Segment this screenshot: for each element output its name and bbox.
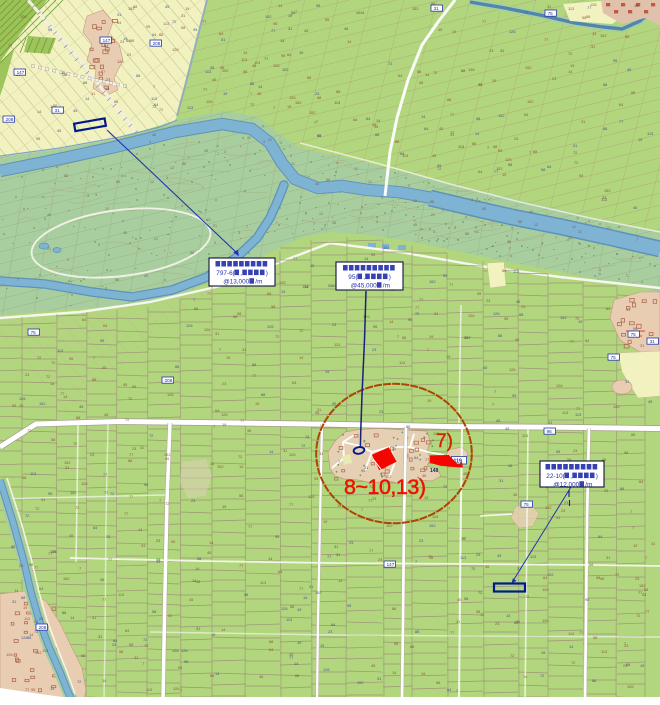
svg-text:31: 31 bbox=[336, 552, 340, 557]
svg-text:3: 3 bbox=[408, 184, 410, 188]
svg-text:21: 21 bbox=[47, 247, 51, 251]
svg-text:3: 3 bbox=[181, 204, 183, 208]
svg-text:77: 77 bbox=[293, 256, 297, 261]
svg-text:72: 72 bbox=[165, 501, 169, 506]
svg-text:19: 19 bbox=[288, 13, 292, 18]
svg-text:152: 152 bbox=[35, 650, 42, 655]
svg-text:96: 96 bbox=[547, 429, 553, 434]
svg-text:3: 3 bbox=[95, 193, 97, 197]
svg-text:45: 45 bbox=[79, 404, 83, 409]
svg-text:95: 95 bbox=[585, 597, 589, 602]
svg-text:31: 31 bbox=[168, 613, 172, 618]
svg-text:19: 19 bbox=[223, 91, 227, 96]
svg-text:23: 23 bbox=[476, 552, 480, 557]
svg-text:147: 147 bbox=[17, 70, 25, 75]
svg-text:45: 45 bbox=[102, 365, 106, 370]
svg-text:95: 95 bbox=[132, 384, 136, 389]
svg-text:58: 58 bbox=[22, 475, 26, 480]
svg-text:23: 23 bbox=[635, 576, 639, 581]
svg-text:77: 77 bbox=[544, 37, 548, 42]
svg-text:152: 152 bbox=[560, 315, 567, 320]
svg-text:21: 21 bbox=[154, 237, 158, 241]
svg-text:31: 31 bbox=[41, 497, 45, 502]
svg-text:19: 19 bbox=[185, 6, 189, 11]
svg-text:88: 88 bbox=[159, 32, 163, 37]
svg-text:23: 23 bbox=[106, 77, 110, 82]
svg-text:21: 21 bbox=[578, 230, 582, 234]
svg-text:12: 12 bbox=[534, 223, 538, 227]
svg-text:113: 113 bbox=[254, 60, 260, 65]
svg-text:12: 12 bbox=[319, 212, 323, 216]
svg-text:208: 208 bbox=[153, 41, 161, 46]
svg-text:147: 147 bbox=[387, 562, 395, 567]
svg-text:95: 95 bbox=[316, 3, 320, 8]
svg-text:77: 77 bbox=[619, 119, 623, 124]
svg-text:113: 113 bbox=[163, 21, 169, 26]
svg-text:77: 77 bbox=[248, 524, 252, 529]
svg-text:88: 88 bbox=[592, 678, 596, 683]
svg-text:45: 45 bbox=[600, 576, 604, 581]
svg-text:88: 88 bbox=[136, 73, 140, 78]
svg-text:126: 126 bbox=[186, 323, 193, 328]
svg-text:/m: /m bbox=[585, 481, 592, 488]
svg-text:31: 31 bbox=[134, 655, 138, 660]
svg-text:88: 88 bbox=[11, 544, 15, 549]
svg-text:77: 77 bbox=[25, 687, 29, 692]
svg-text:95: 95 bbox=[275, 534, 279, 539]
svg-text:19: 19 bbox=[23, 605, 27, 610]
svg-text:72: 72 bbox=[143, 637, 147, 642]
svg-text:7: 7 bbox=[273, 105, 275, 110]
svg-text:152: 152 bbox=[600, 33, 607, 38]
svg-text:113: 113 bbox=[260, 580, 266, 585]
svg-text:77: 77 bbox=[415, 305, 419, 310]
svg-text:31: 31 bbox=[319, 451, 323, 456]
svg-text:88: 88 bbox=[626, 662, 630, 667]
svg-text:75: 75 bbox=[611, 355, 617, 360]
svg-text:58: 58 bbox=[596, 575, 600, 580]
svg-text:113: 113 bbox=[146, 687, 152, 692]
svg-text:113: 113 bbox=[460, 555, 466, 560]
svg-text:23: 23 bbox=[315, 91, 319, 96]
svg-text:19: 19 bbox=[325, 369, 329, 374]
svg-text:126: 126 bbox=[173, 686, 180, 691]
svg-text:3: 3 bbox=[166, 176, 168, 180]
svg-text:31: 31 bbox=[309, 584, 313, 589]
svg-text:95: 95 bbox=[361, 468, 365, 473]
svg-text:3: 3 bbox=[238, 231, 240, 235]
svg-text:152: 152 bbox=[429, 523, 436, 528]
svg-text:152: 152 bbox=[545, 505, 552, 510]
svg-text:45: 45 bbox=[210, 65, 214, 70]
svg-text:19: 19 bbox=[310, 263, 314, 268]
svg-text:88: 88 bbox=[417, 69, 421, 74]
svg-text:31: 31 bbox=[640, 343, 644, 348]
svg-text:113: 113 bbox=[568, 6, 574, 11]
svg-text:113: 113 bbox=[187, 105, 193, 110]
svg-text:7: 7 bbox=[305, 212, 307, 216]
svg-text:95: 95 bbox=[315, 410, 319, 415]
svg-text:77: 77 bbox=[289, 502, 293, 507]
svg-text:95: 95 bbox=[69, 356, 73, 361]
svg-text:152: 152 bbox=[547, 572, 554, 577]
svg-text:95: 95 bbox=[374, 124, 378, 129]
svg-text:58: 58 bbox=[508, 162, 512, 167]
svg-text:31: 31 bbox=[196, 626, 200, 631]
svg-text:77: 77 bbox=[524, 10, 528, 15]
svg-text:7: 7 bbox=[246, 225, 248, 229]
svg-text:126: 126 bbox=[279, 280, 286, 285]
svg-text:113: 113 bbox=[24, 616, 30, 621]
svg-text:19: 19 bbox=[323, 519, 327, 524]
svg-text:88: 88 bbox=[307, 75, 311, 80]
svg-text:45: 45 bbox=[57, 128, 61, 133]
svg-text:72: 72 bbox=[437, 166, 441, 171]
svg-text:19: 19 bbox=[640, 663, 644, 668]
svg-text:58: 58 bbox=[541, 167, 545, 172]
svg-text:7: 7 bbox=[456, 688, 458, 693]
svg-text:88: 88 bbox=[603, 82, 607, 87]
svg-text:45: 45 bbox=[634, 3, 638, 8]
svg-text:31: 31 bbox=[181, 13, 185, 18]
svg-text:58: 58 bbox=[29, 562, 33, 567]
svg-text:88: 88 bbox=[133, 4, 137, 9]
svg-text:23: 23 bbox=[112, 642, 116, 647]
svg-text:7: 7 bbox=[313, 222, 315, 226]
svg-text:45: 45 bbox=[315, 182, 319, 186]
svg-text:31: 31 bbox=[377, 676, 381, 681]
svg-text:45: 45 bbox=[439, 126, 443, 131]
svg-text:77: 77 bbox=[207, 291, 211, 296]
svg-text:126: 126 bbox=[542, 618, 549, 623]
svg-text:126: 126 bbox=[117, 59, 124, 64]
svg-text:75: 75 bbox=[524, 502, 530, 507]
svg-text:31: 31 bbox=[334, 544, 338, 549]
svg-text:23: 23 bbox=[90, 452, 94, 457]
svg-text:58: 58 bbox=[244, 592, 248, 597]
svg-text:113: 113 bbox=[334, 342, 340, 347]
svg-text:31: 31 bbox=[650, 339, 656, 344]
svg-text:77: 77 bbox=[34, 565, 38, 570]
svg-text:95: 95 bbox=[48, 491, 52, 496]
svg-text:113: 113 bbox=[601, 649, 607, 654]
svg-text:152: 152 bbox=[222, 68, 229, 73]
svg-text:152: 152 bbox=[282, 67, 289, 72]
svg-text:31: 31 bbox=[55, 108, 61, 113]
svg-text:3: 3 bbox=[214, 241, 216, 245]
svg-text:45: 45 bbox=[648, 399, 652, 404]
svg-text:95(: 95( bbox=[348, 274, 358, 281]
svg-text:95: 95 bbox=[144, 482, 148, 487]
svg-text:126: 126 bbox=[20, 14, 27, 19]
svg-text:31: 31 bbox=[141, 543, 145, 548]
svg-text:58: 58 bbox=[493, 144, 497, 149]
svg-text:88: 88 bbox=[261, 392, 265, 397]
svg-text:19: 19 bbox=[446, 354, 450, 359]
svg-text:88: 88 bbox=[392, 606, 396, 611]
svg-text:7: 7 bbox=[415, 559, 417, 564]
svg-text:152: 152 bbox=[315, 590, 322, 595]
svg-text:7: 7 bbox=[338, 459, 340, 464]
svg-text:/m: /m bbox=[255, 278, 262, 285]
svg-text:72: 72 bbox=[37, 355, 41, 360]
svg-text:113: 113 bbox=[647, 131, 653, 136]
svg-text:72: 72 bbox=[568, 51, 572, 56]
svg-text:95: 95 bbox=[633, 326, 637, 331]
svg-text:95: 95 bbox=[477, 291, 481, 296]
svg-text:147: 147 bbox=[103, 38, 111, 43]
svg-text:88: 88 bbox=[194, 306, 198, 311]
svg-text:72: 72 bbox=[525, 594, 529, 599]
svg-text:31: 31 bbox=[34, 619, 38, 624]
svg-text:77: 77 bbox=[645, 609, 649, 614]
svg-text:7: 7 bbox=[529, 150, 531, 155]
svg-text:77: 77 bbox=[271, 28, 275, 33]
svg-text:95: 95 bbox=[512, 393, 516, 398]
svg-text:45: 45 bbox=[482, 207, 486, 211]
svg-text:3: 3 bbox=[149, 140, 151, 144]
svg-text:58: 58 bbox=[233, 314, 237, 319]
svg-text:8~10,13): 8~10,13) bbox=[344, 475, 426, 499]
svg-text:19: 19 bbox=[297, 607, 301, 612]
svg-text:23: 23 bbox=[156, 538, 160, 543]
svg-text:23: 23 bbox=[332, 322, 336, 327]
svg-text:77: 77 bbox=[327, 554, 331, 559]
svg-text:58: 58 bbox=[237, 311, 241, 316]
svg-text:31: 31 bbox=[92, 615, 96, 620]
svg-text:31: 31 bbox=[12, 599, 16, 604]
svg-text:95: 95 bbox=[498, 148, 502, 153]
svg-text:7: 7 bbox=[487, 145, 489, 150]
svg-text:77: 77 bbox=[462, 536, 466, 541]
svg-text:58: 58 bbox=[515, 337, 519, 342]
svg-text:88: 88 bbox=[336, 89, 340, 94]
svg-text:12: 12 bbox=[170, 166, 174, 170]
svg-text:88: 88 bbox=[461, 68, 465, 73]
svg-text:19: 19 bbox=[570, 63, 574, 68]
svg-text:45: 45 bbox=[207, 550, 211, 555]
svg-text:45: 45 bbox=[47, 213, 51, 217]
svg-text:88: 88 bbox=[430, 200, 434, 204]
svg-text:95: 95 bbox=[184, 659, 188, 664]
svg-text:7: 7 bbox=[153, 84, 155, 89]
svg-text:7: 7 bbox=[219, 347, 221, 352]
svg-text:3: 3 bbox=[433, 230, 435, 234]
svg-text:77: 77 bbox=[240, 418, 244, 423]
svg-text:45: 45 bbox=[152, 133, 156, 137]
svg-text:148: 148 bbox=[430, 468, 439, 474]
svg-text:72: 72 bbox=[128, 396, 132, 401]
svg-text:7: 7 bbox=[645, 555, 647, 560]
svg-text:12: 12 bbox=[105, 207, 109, 211]
svg-text:88: 88 bbox=[130, 38, 134, 43]
svg-text:126: 126 bbox=[281, 606, 288, 611]
svg-text:31: 31 bbox=[434, 311, 438, 316]
svg-text:31: 31 bbox=[651, 541, 655, 546]
svg-text:23: 23 bbox=[604, 488, 608, 493]
svg-text:72: 72 bbox=[471, 566, 475, 571]
svg-text:58: 58 bbox=[239, 493, 243, 498]
svg-text:31: 31 bbox=[547, 4, 551, 9]
svg-text:3: 3 bbox=[87, 194, 89, 198]
svg-text:7: 7 bbox=[448, 506, 450, 511]
svg-text:19: 19 bbox=[452, 29, 456, 34]
svg-text:88: 88 bbox=[81, 653, 85, 658]
svg-text:126: 126 bbox=[323, 667, 330, 672]
svg-text:77: 77 bbox=[579, 630, 583, 635]
svg-text:3: 3 bbox=[44, 217, 46, 221]
svg-text:208: 208 bbox=[6, 117, 14, 122]
svg-text:72: 72 bbox=[388, 61, 392, 66]
svg-text:126: 126 bbox=[6, 652, 13, 657]
svg-text:58: 58 bbox=[328, 283, 332, 288]
svg-text:88: 88 bbox=[92, 377, 96, 382]
svg-text:152: 152 bbox=[527, 99, 534, 104]
svg-text:@45,000: @45,000 bbox=[351, 282, 377, 289]
svg-text:58: 58 bbox=[271, 304, 275, 309]
svg-text:23: 23 bbox=[602, 195, 606, 200]
svg-text:88: 88 bbox=[533, 149, 537, 154]
svg-text:45: 45 bbox=[247, 428, 251, 433]
svg-text:113: 113 bbox=[241, 57, 247, 62]
svg-text:77: 77 bbox=[108, 557, 112, 562]
svg-text:77: 77 bbox=[482, 19, 486, 24]
svg-text:7: 7 bbox=[630, 509, 632, 514]
svg-text:88: 88 bbox=[210, 673, 214, 678]
svg-text:72: 72 bbox=[125, 417, 129, 422]
svg-text:113: 113 bbox=[522, 433, 528, 438]
svg-text:72: 72 bbox=[433, 70, 437, 75]
svg-text:12: 12 bbox=[568, 236, 572, 240]
svg-text:113: 113 bbox=[42, 648, 48, 653]
svg-text:21: 21 bbox=[607, 226, 611, 230]
svg-text:77: 77 bbox=[103, 472, 107, 477]
svg-text:23: 23 bbox=[19, 563, 23, 568]
svg-text:31: 31 bbox=[581, 119, 585, 124]
svg-text:58: 58 bbox=[419, 80, 423, 85]
svg-text:88: 88 bbox=[269, 639, 273, 644]
svg-text:95: 95 bbox=[100, 338, 104, 343]
svg-text:23: 23 bbox=[561, 508, 565, 513]
svg-text:88: 88 bbox=[375, 132, 379, 137]
svg-text:58: 58 bbox=[119, 649, 123, 654]
svg-text:77: 77 bbox=[576, 406, 580, 411]
svg-text:77: 77 bbox=[203, 87, 207, 92]
svg-text:77: 77 bbox=[202, 19, 206, 24]
svg-text:31: 31 bbox=[548, 420, 552, 425]
svg-text:72: 72 bbox=[301, 443, 305, 448]
svg-text:45: 45 bbox=[508, 463, 512, 468]
svg-text:45: 45 bbox=[332, 221, 336, 225]
svg-text:7: 7 bbox=[361, 507, 363, 512]
svg-text:88: 88 bbox=[410, 644, 414, 649]
svg-text:45: 45 bbox=[633, 205, 637, 210]
svg-text:88: 88 bbox=[115, 278, 119, 282]
svg-text:31: 31 bbox=[242, 347, 246, 352]
svg-text:95: 95 bbox=[314, 476, 318, 481]
svg-text:31: 31 bbox=[625, 379, 629, 384]
svg-text:77: 77 bbox=[449, 282, 453, 287]
svg-text:7: 7 bbox=[213, 424, 215, 429]
svg-text:21: 21 bbox=[291, 162, 295, 166]
svg-text:95: 95 bbox=[371, 252, 375, 257]
svg-text:72: 72 bbox=[77, 679, 81, 684]
svg-text:12: 12 bbox=[354, 167, 358, 171]
svg-text:31: 31 bbox=[434, 6, 440, 11]
svg-text:77: 77 bbox=[124, 511, 128, 516]
svg-text:72: 72 bbox=[571, 660, 575, 665]
svg-text:72: 72 bbox=[51, 360, 55, 365]
svg-text:77: 77 bbox=[102, 597, 106, 602]
svg-text:19: 19 bbox=[541, 650, 545, 655]
svg-text:72: 72 bbox=[159, 107, 163, 112]
svg-text:31: 31 bbox=[392, 446, 396, 451]
svg-text:95: 95 bbox=[317, 133, 321, 138]
svg-text:75: 75 bbox=[631, 332, 637, 337]
svg-text:95: 95 bbox=[12, 403, 16, 408]
svg-text:113: 113 bbox=[568, 631, 574, 636]
svg-text:72: 72 bbox=[540, 673, 544, 678]
svg-text:152: 152 bbox=[613, 404, 620, 409]
svg-text:45: 45 bbox=[144, 274, 148, 278]
svg-text:58: 58 bbox=[156, 557, 160, 562]
svg-text:88: 88 bbox=[243, 69, 247, 74]
svg-text:45: 45 bbox=[304, 28, 308, 33]
svg-text:23: 23 bbox=[464, 335, 468, 340]
svg-text:113: 113 bbox=[57, 348, 63, 353]
svg-text:88: 88 bbox=[114, 99, 118, 104]
svg-text:45: 45 bbox=[513, 492, 517, 497]
svg-text:95: 95 bbox=[347, 603, 351, 608]
svg-text:58: 58 bbox=[402, 335, 406, 340]
svg-text:88: 88 bbox=[326, 178, 330, 182]
svg-text:45: 45 bbox=[123, 231, 127, 235]
svg-text:95: 95 bbox=[281, 53, 285, 58]
svg-text:45: 45 bbox=[438, 27, 442, 32]
svg-text:3: 3 bbox=[599, 268, 601, 272]
svg-text:58: 58 bbox=[582, 15, 586, 20]
svg-text:23: 23 bbox=[564, 500, 568, 505]
svg-text:58: 58 bbox=[593, 635, 597, 640]
svg-text:126: 126 bbox=[21, 635, 28, 640]
svg-text:31: 31 bbox=[65, 465, 69, 470]
svg-text:7): 7) bbox=[436, 431, 453, 452]
svg-text:19: 19 bbox=[421, 671, 425, 676]
svg-text:31: 31 bbox=[215, 331, 219, 336]
svg-text:88: 88 bbox=[295, 673, 299, 678]
svg-text:21: 21 bbox=[207, 218, 211, 222]
svg-text:95: 95 bbox=[178, 665, 182, 670]
svg-text:3: 3 bbox=[476, 197, 478, 201]
svg-text:/m: /m bbox=[383, 282, 390, 289]
svg-text:113: 113 bbox=[513, 269, 519, 274]
svg-text:72: 72 bbox=[615, 572, 619, 577]
svg-text:126: 126 bbox=[204, 327, 211, 332]
svg-text:23: 23 bbox=[379, 409, 383, 414]
svg-text:152: 152 bbox=[63, 576, 70, 581]
svg-text:77: 77 bbox=[638, 590, 642, 595]
svg-text:95: 95 bbox=[408, 317, 412, 322]
svg-text:77: 77 bbox=[129, 452, 133, 457]
svg-text:72: 72 bbox=[574, 160, 578, 165]
svg-text:77: 77 bbox=[369, 548, 373, 553]
svg-text:45: 45 bbox=[457, 597, 461, 602]
svg-text:95: 95 bbox=[556, 449, 560, 454]
svg-text:45: 45 bbox=[507, 240, 511, 244]
svg-text:,: , bbox=[570, 473, 572, 480]
svg-text:88: 88 bbox=[498, 333, 502, 338]
svg-text:7: 7 bbox=[79, 566, 81, 571]
